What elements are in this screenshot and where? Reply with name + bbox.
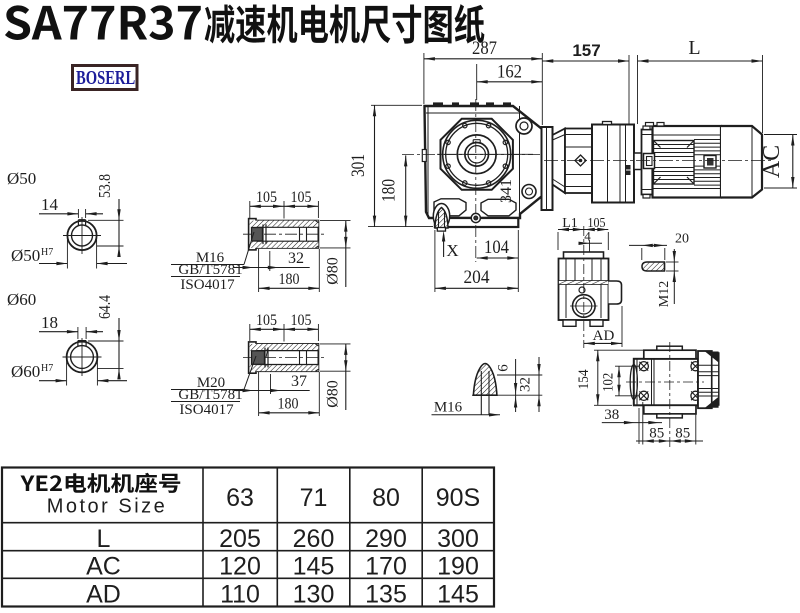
svg-text:18: 18 [41, 313, 58, 332]
svg-text:205: 205 [219, 525, 261, 553]
svg-text:Motor Size: Motor Size [47, 496, 168, 518]
svg-text:190: 190 [437, 553, 479, 581]
svg-text:L: L [97, 525, 111, 553]
svg-text:135: 135 [365, 580, 407, 608]
svg-text:105: 105 [291, 312, 312, 329]
svg-text:AC: AC [759, 145, 785, 178]
svg-text:85: 85 [675, 426, 690, 442]
svg-text:53.8: 53.8 [95, 174, 114, 198]
svg-text:ISO4017: ISO4017 [180, 277, 235, 293]
svg-text:20: 20 [675, 232, 689, 247]
svg-text:85: 85 [649, 426, 664, 442]
svg-text:170: 170 [365, 553, 407, 581]
svg-text:64.4: 64.4 [95, 295, 114, 319]
svg-text:37: 37 [291, 373, 307, 390]
svg-text:M12: M12 [657, 281, 672, 307]
svg-text:105: 105 [256, 189, 277, 206]
svg-text:180: 180 [279, 271, 300, 288]
svg-text:Ø80: Ø80 [325, 257, 342, 285]
svg-text:260: 260 [293, 525, 335, 553]
svg-text:AC: AC [86, 553, 121, 581]
svg-text:63: 63 [226, 484, 254, 512]
svg-text:AD: AD [593, 328, 615, 344]
svg-text:Ø80: Ø80 [325, 380, 342, 408]
svg-text:L1: L1 [562, 216, 578, 231]
svg-text:32: 32 [518, 377, 534, 392]
svg-text:157: 157 [572, 41, 600, 60]
svg-text:M16: M16 [434, 400, 463, 416]
svg-text:290: 290 [365, 525, 407, 553]
svg-text:105: 105 [291, 189, 312, 206]
svg-text:6: 6 [496, 364, 512, 372]
svg-text:H7: H7 [41, 363, 53, 374]
svg-text:Ø60: Ø60 [11, 362, 40, 381]
svg-text:ISO4017: ISO4017 [179, 402, 234, 418]
svg-text:154: 154 [576, 369, 592, 389]
svg-text:Ø50: Ø50 [7, 169, 36, 188]
svg-text:71: 71 [300, 484, 328, 512]
svg-text:Ø50: Ø50 [11, 246, 40, 265]
svg-text:180: 180 [278, 396, 299, 413]
svg-text:32: 32 [288, 250, 304, 267]
svg-text:110: 110 [220, 580, 260, 608]
svg-text:145: 145 [437, 580, 479, 608]
svg-text:L: L [688, 37, 700, 59]
svg-text:80: 80 [372, 484, 400, 512]
svg-text:130: 130 [293, 580, 335, 608]
svg-text:301: 301 [348, 154, 369, 177]
svg-text:287: 287 [472, 38, 497, 59]
svg-text:204: 204 [464, 267, 490, 288]
svg-text:102: 102 [600, 373, 616, 392]
svg-text:14: 14 [41, 195, 59, 214]
svg-text:180: 180 [379, 179, 400, 202]
svg-text:120: 120 [219, 553, 261, 581]
svg-text:AD: AD [86, 580, 121, 608]
svg-text:38: 38 [604, 407, 619, 423]
svg-text:104: 104 [484, 237, 509, 258]
svg-text:H7: H7 [41, 247, 53, 258]
svg-text:341: 341 [498, 179, 515, 203]
svg-text:145: 145 [293, 553, 335, 581]
svg-text:90S: 90S [436, 484, 480, 512]
svg-text:4: 4 [584, 229, 591, 244]
svg-text:162: 162 [497, 62, 522, 83]
svg-text:Ø60: Ø60 [7, 290, 36, 309]
svg-text:BOSERL: BOSERL [76, 66, 135, 89]
svg-text:X: X [446, 241, 458, 260]
svg-text:300: 300 [437, 525, 479, 553]
svg-text:105: 105 [256, 312, 277, 329]
